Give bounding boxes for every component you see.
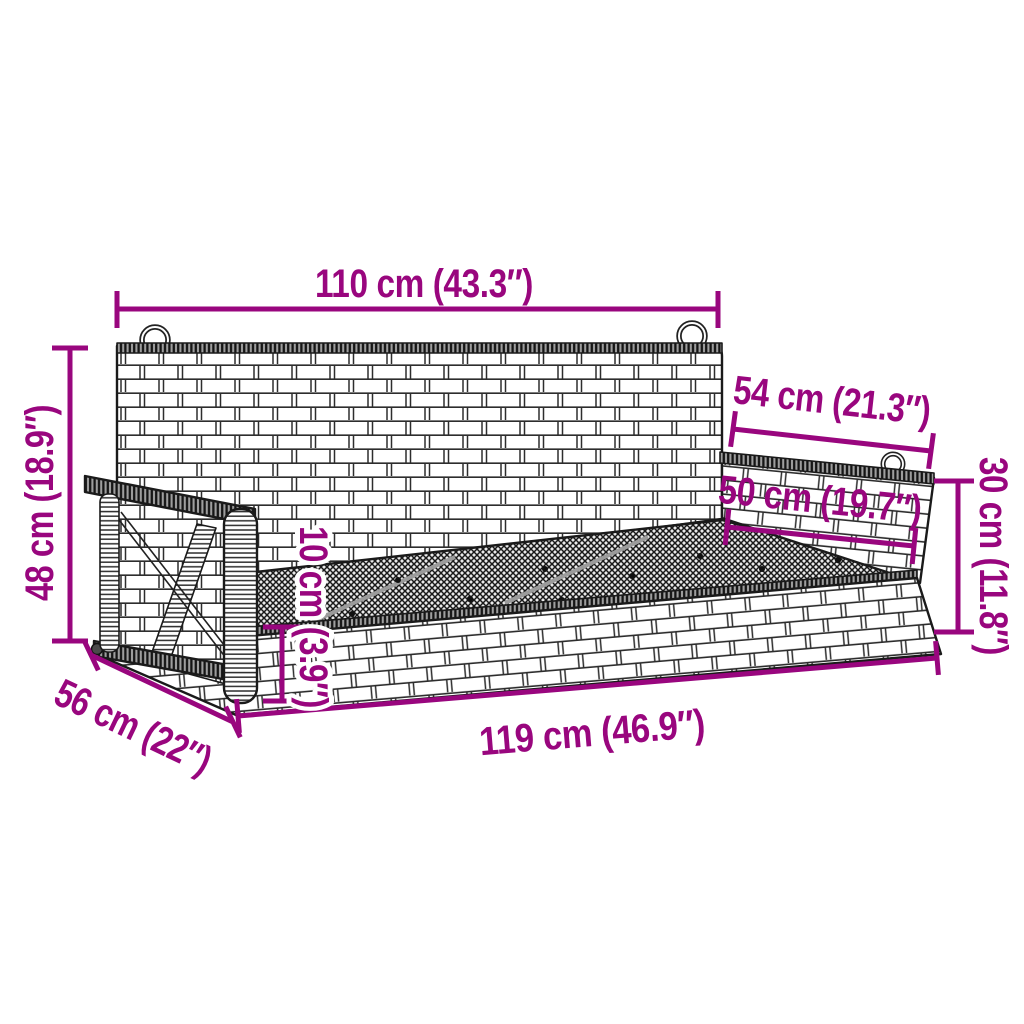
dimension-label-top-width: 110 cm (43.3″)	[315, 262, 533, 306]
dimension-label-back-height: 48 cm (18.9″)	[18, 405, 62, 601]
dimension-label-armrest-height: 30 cm (11.8″)	[971, 457, 1015, 655]
backrest-top-braid	[117, 343, 722, 353]
product-dimension-diagram: 110 cm (43.3″) 48 cm (18.9″) 56 cm (22″)…	[0, 0, 1024, 1024]
left-armrest	[85, 476, 257, 703]
left-armrest-front-post	[224, 509, 257, 703]
dimension-label-total-width: 119 cm (46.9″)	[478, 702, 707, 764]
swing-bench-illustration: 110 cm (43.3″) 48 cm (18.9″) 56 cm (22″)…	[0, 0, 1024, 1024]
dimension-back-height: 48 cm (18.9″)	[18, 348, 88, 641]
left-armrest-rear-post	[100, 494, 119, 652]
dimension-top-width: 110 cm (43.3″)	[117, 262, 718, 328]
dimension-label-seat-thickness: 10 cm (3.9″)	[291, 526, 335, 708]
dimension-armrest-height: 30 cm (11.8″)	[934, 457, 1015, 655]
dimension-label-armrest-depth: 54 cm (21.3″)	[731, 368, 933, 433]
dimension-armrest-depth: 54 cm (21.3″)	[731, 368, 934, 469]
